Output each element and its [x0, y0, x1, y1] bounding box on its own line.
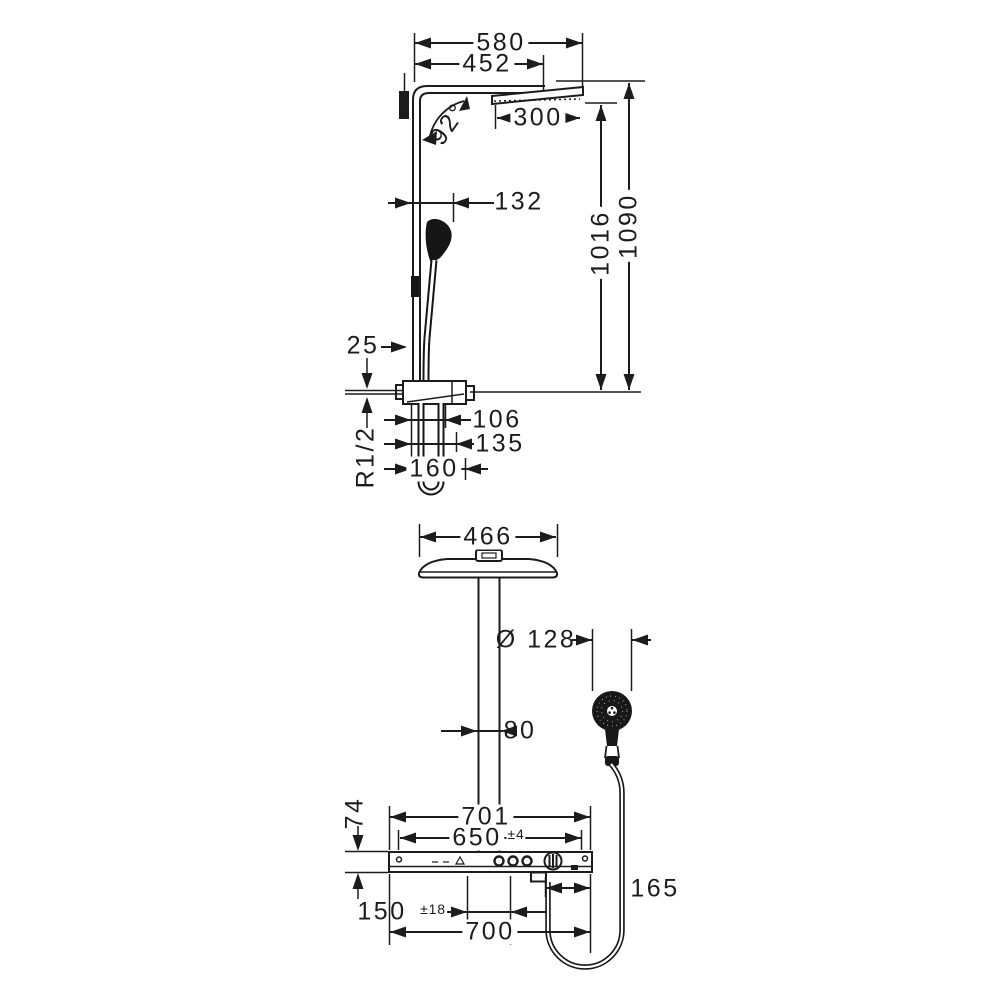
dim-label-1090: 1090	[617, 190, 642, 262]
dim-label-1016: 1016	[589, 207, 614, 279]
valve-body-side	[396, 381, 474, 404]
dim-label-132: 132	[491, 190, 546, 215]
dim-label-650: 650	[449, 826, 504, 851]
swivel-joint	[476, 550, 502, 561]
dim-label-165: 165	[627, 877, 682, 902]
dim-label-d128: Ø 128	[493, 628, 580, 653]
dim-label-700: 700	[462, 920, 517, 945]
dim-label-466: 466	[460, 525, 515, 550]
dim-label-135: 135	[472, 432, 527, 457]
dim-label-300: 300	[510, 106, 565, 131]
hose-outlet	[531, 873, 546, 882]
hand-shower-front	[592, 691, 632, 766]
dim-label-160: 160	[406, 457, 461, 482]
handshower-holder	[411, 276, 419, 297]
dim-label-pm18: ±18	[419, 902, 447, 916]
dim-label-25: 25	[344, 334, 383, 359]
dim-label-74: 74	[343, 794, 368, 833]
dim-label-pm4: ±4	[506, 827, 525, 841]
dim-label-r12: R1/2	[354, 423, 379, 492]
thermostat-bar	[389, 852, 592, 882]
hand-shower-side	[411, 219, 452, 381]
wall-bracket	[399, 91, 409, 119]
dim-label-452: 452	[459, 52, 514, 77]
dim-label-150: 150	[354, 900, 409, 925]
overhead-shower-front	[419, 550, 557, 578]
handshower-neck	[605, 729, 619, 746]
dim-label-80: 80	[501, 719, 540, 744]
technical-drawing-page: 580 452 92° 300 132 1016 1090 25 106 135…	[0, 0, 1000, 1000]
overhead-shower-side	[492, 87, 583, 104]
